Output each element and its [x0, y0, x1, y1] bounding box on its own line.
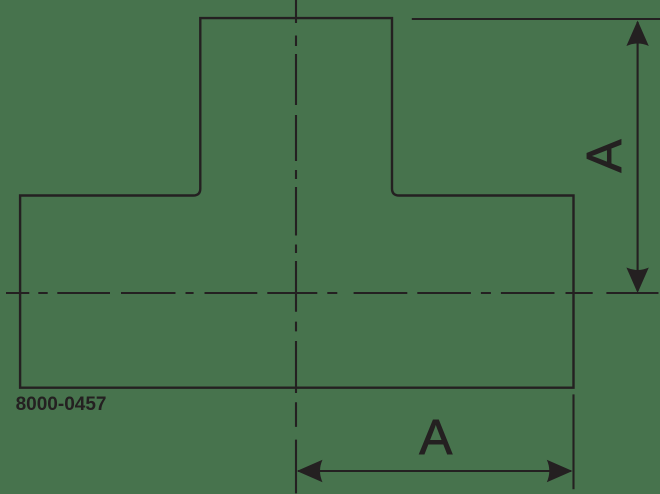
svg-text:A: A	[577, 139, 632, 172]
svg-text:8000-0457: 8000-0457	[16, 394, 107, 415]
svg-text:A: A	[419, 410, 452, 465]
